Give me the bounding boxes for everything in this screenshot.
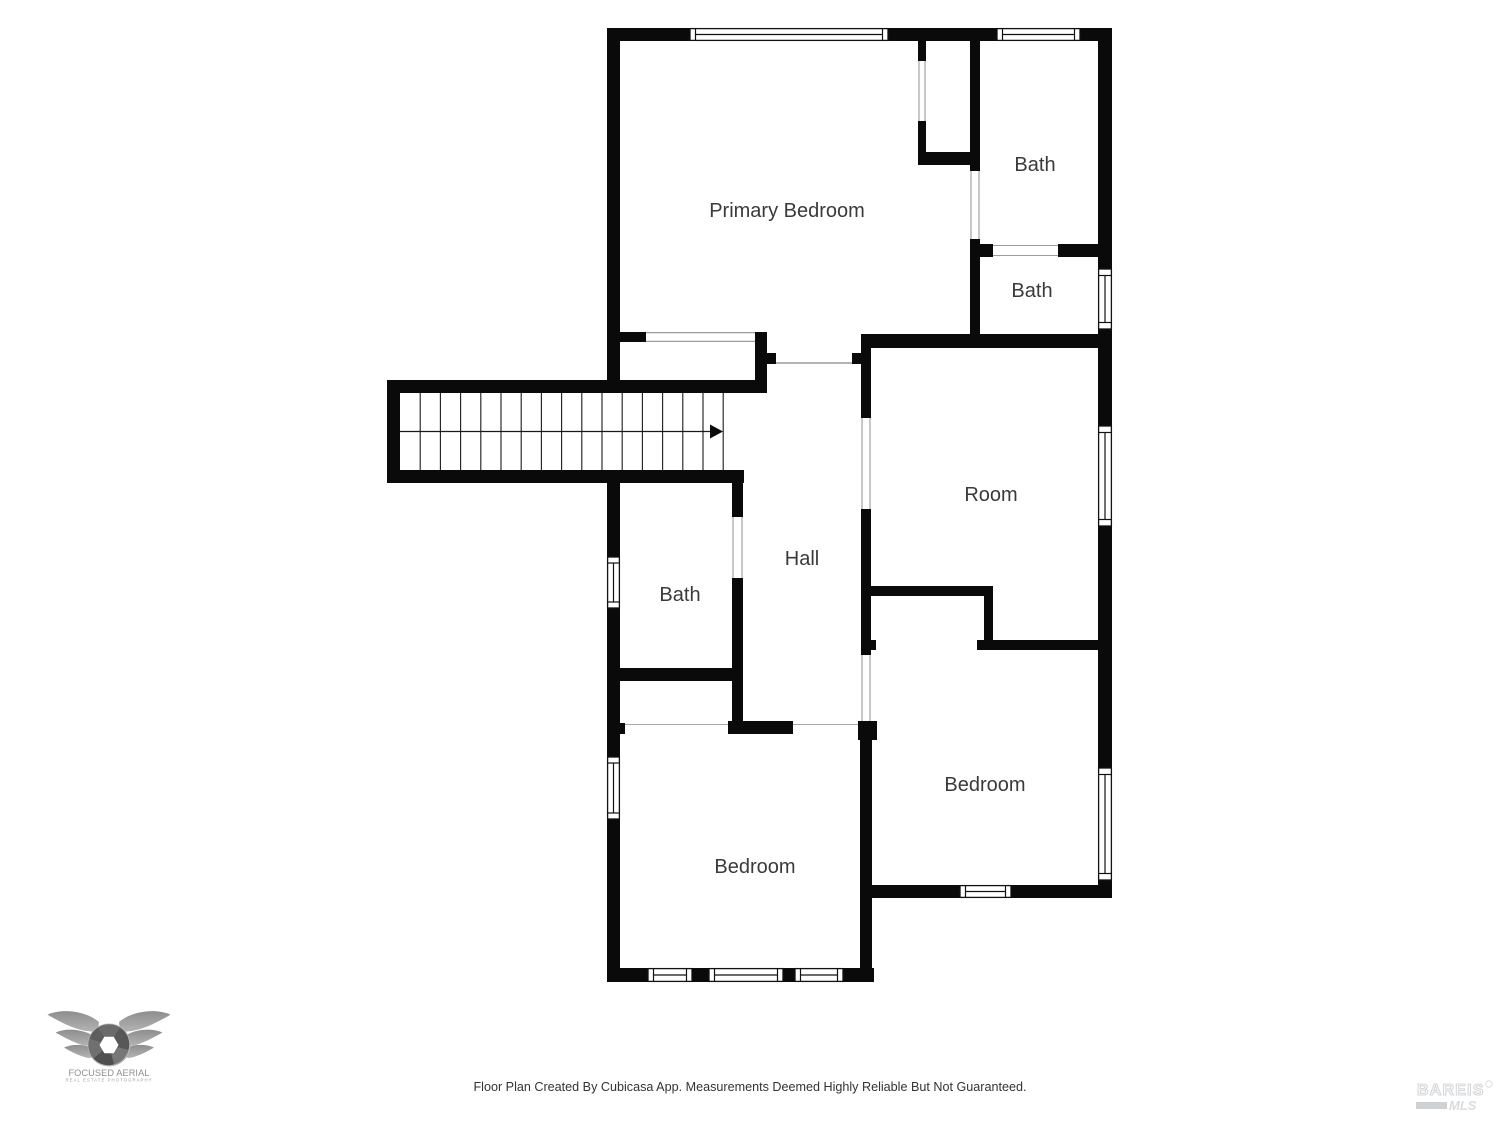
svg-text:Room: Room (964, 484, 1017, 506)
svg-text:Primary Bedroom: Primary Bedroom (709, 200, 865, 222)
svg-text:Bath: Bath (659, 584, 700, 606)
svg-text:Bedroom: Bedroom (714, 856, 795, 878)
svg-text:Bath: Bath (1014, 154, 1055, 176)
svg-text:Bedroom: Bedroom (944, 774, 1025, 796)
svg-text:Hall: Hall (785, 548, 819, 570)
svg-text:MLS: MLS (1449, 1098, 1477, 1113)
svg-text:Floor Plan Created By Cubicasa: Floor Plan Created By Cubicasa App. Meas… (473, 1080, 1026, 1094)
svg-text:BAREIS: BAREIS (1417, 1082, 1485, 1099)
svg-text:FOCUSED AERIAL: FOCUSED AERIAL (68, 1068, 149, 1078)
svg-text:REAL ESTATE PHOTOGRAPHY: REAL ESTATE PHOTOGRAPHY (65, 1078, 152, 1083)
svg-text:Bath: Bath (1011, 280, 1052, 302)
